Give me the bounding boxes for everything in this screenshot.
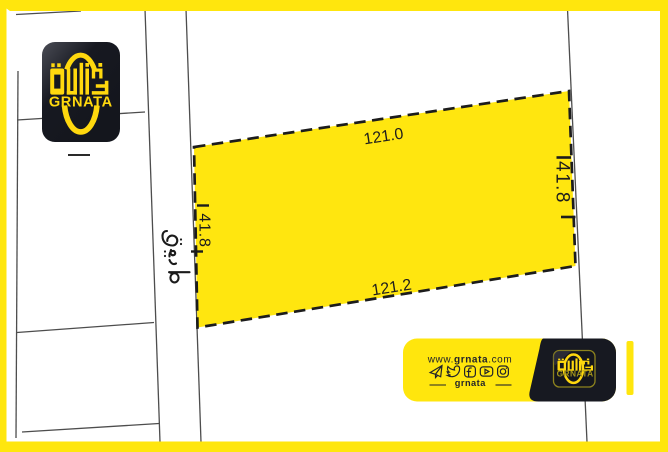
svg-text:41.8: 41.8 <box>552 161 573 204</box>
svg-text:GRNATA: GRNATA <box>557 368 594 378</box>
svg-text:www.grnata.com: www.grnata.com <box>427 355 513 366</box>
svg-text:grnata: grnata <box>455 378 486 388</box>
svg-text:41.8: 41.8 <box>196 213 213 247</box>
svg-text:GRNATA: GRNATA <box>49 94 113 110</box>
